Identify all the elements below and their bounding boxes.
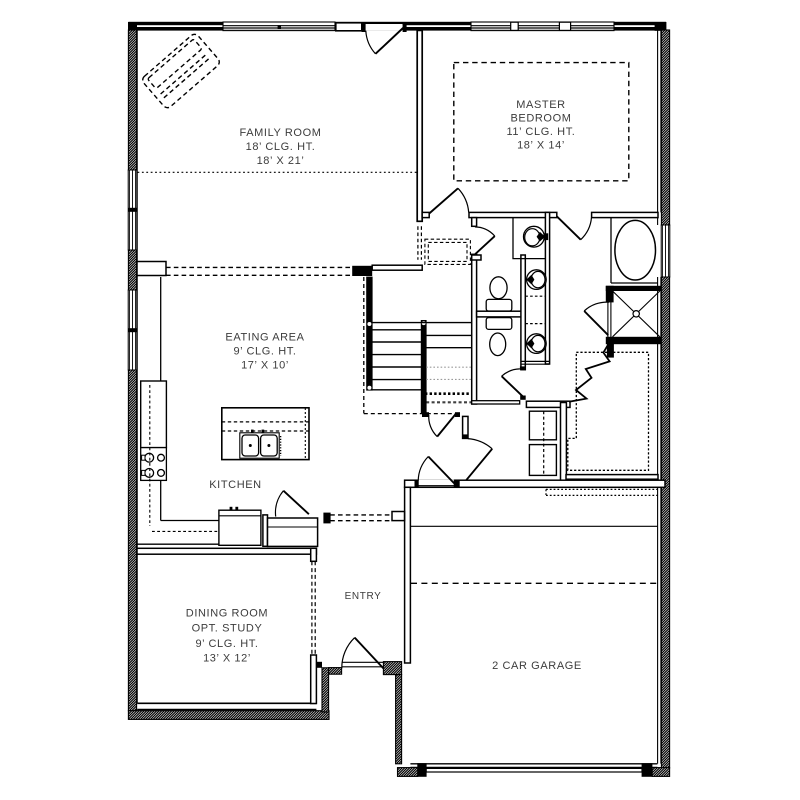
- svg-text:FAMILY ROOM: FAMILY ROOM: [240, 127, 322, 139]
- svg-text:18’ X 21’: 18’ X 21’: [257, 155, 305, 167]
- svg-text:9’ CLG. HT.: 9’ CLG. HT.: [233, 346, 296, 358]
- svg-text:ENTRY: ENTRY: [345, 591, 382, 602]
- svg-text:EATING AREA: EATING AREA: [225, 332, 304, 344]
- svg-text:11’ CLG. HT.: 11’ CLG. HT.: [507, 126, 576, 138]
- svg-text:BEDROOM: BEDROOM: [510, 113, 571, 125]
- svg-text:9’ CLG. HT.: 9’ CLG. HT.: [195, 638, 258, 650]
- svg-text:18’ X 14’: 18’ X 14’: [517, 140, 565, 152]
- svg-text:13’ X 12’: 13’ X 12’: [203, 653, 251, 665]
- svg-text:KITCHEN: KITCHEN: [209, 479, 261, 491]
- svg-text:DINING ROOM: DINING ROOM: [186, 608, 268, 620]
- svg-text:18’ CLG. HT.: 18’ CLG. HT.: [246, 141, 316, 153]
- svg-text:MASTER: MASTER: [516, 99, 565, 111]
- svg-text:2 CAR GARAGE: 2 CAR GARAGE: [492, 660, 582, 672]
- svg-text:17’ X 10’: 17’ X 10’: [241, 360, 289, 372]
- svg-text:OPT. STUDY: OPT. STUDY: [192, 623, 263, 635]
